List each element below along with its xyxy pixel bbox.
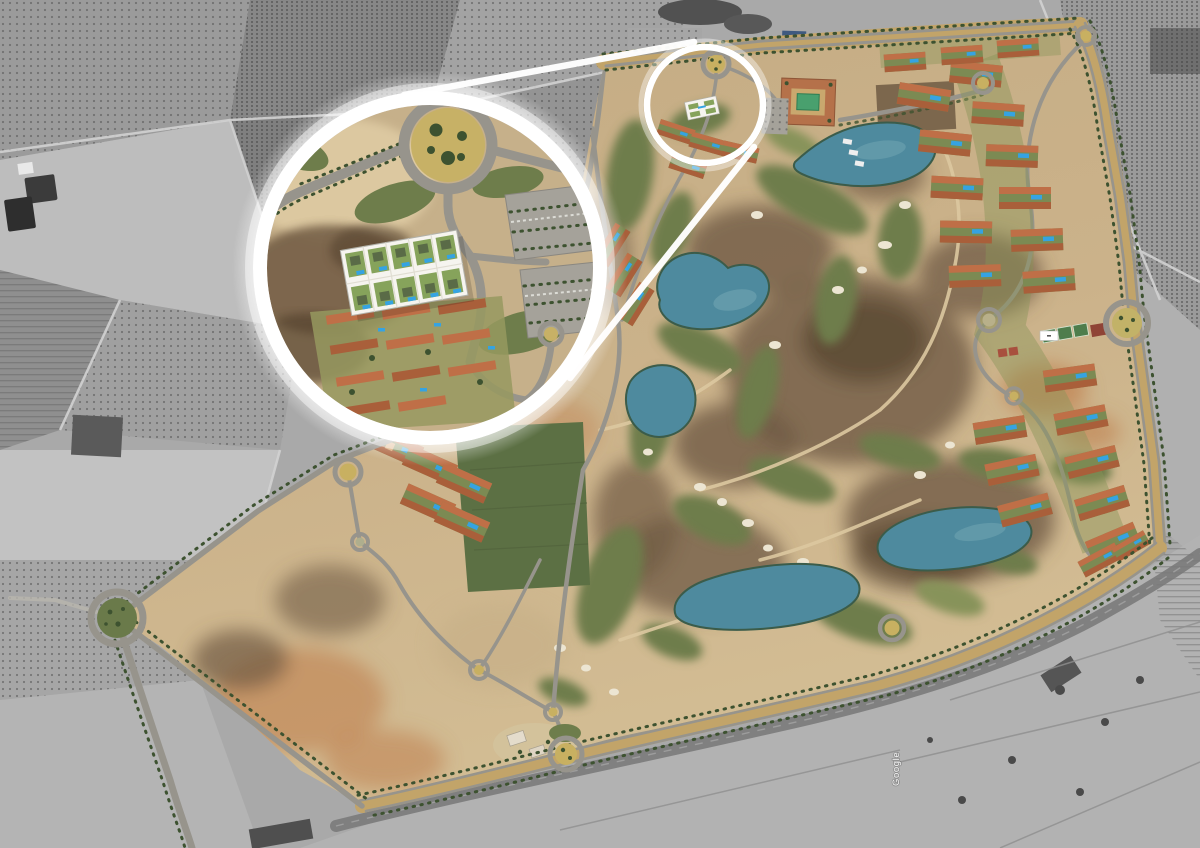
loupe-roundabout xyxy=(404,101,492,189)
masterplan-svg: Google xyxy=(0,0,1200,848)
lake-mid xyxy=(626,365,695,437)
magnifier-loupe xyxy=(232,70,628,466)
google-watermark: Google xyxy=(891,752,902,786)
aerial-map-image: Google xyxy=(0,0,1200,848)
roundabout-east xyxy=(1106,302,1148,344)
white-label-marker xyxy=(1040,331,1058,341)
hotel-building xyxy=(780,78,836,126)
roundabout-west-gateway xyxy=(91,592,143,644)
